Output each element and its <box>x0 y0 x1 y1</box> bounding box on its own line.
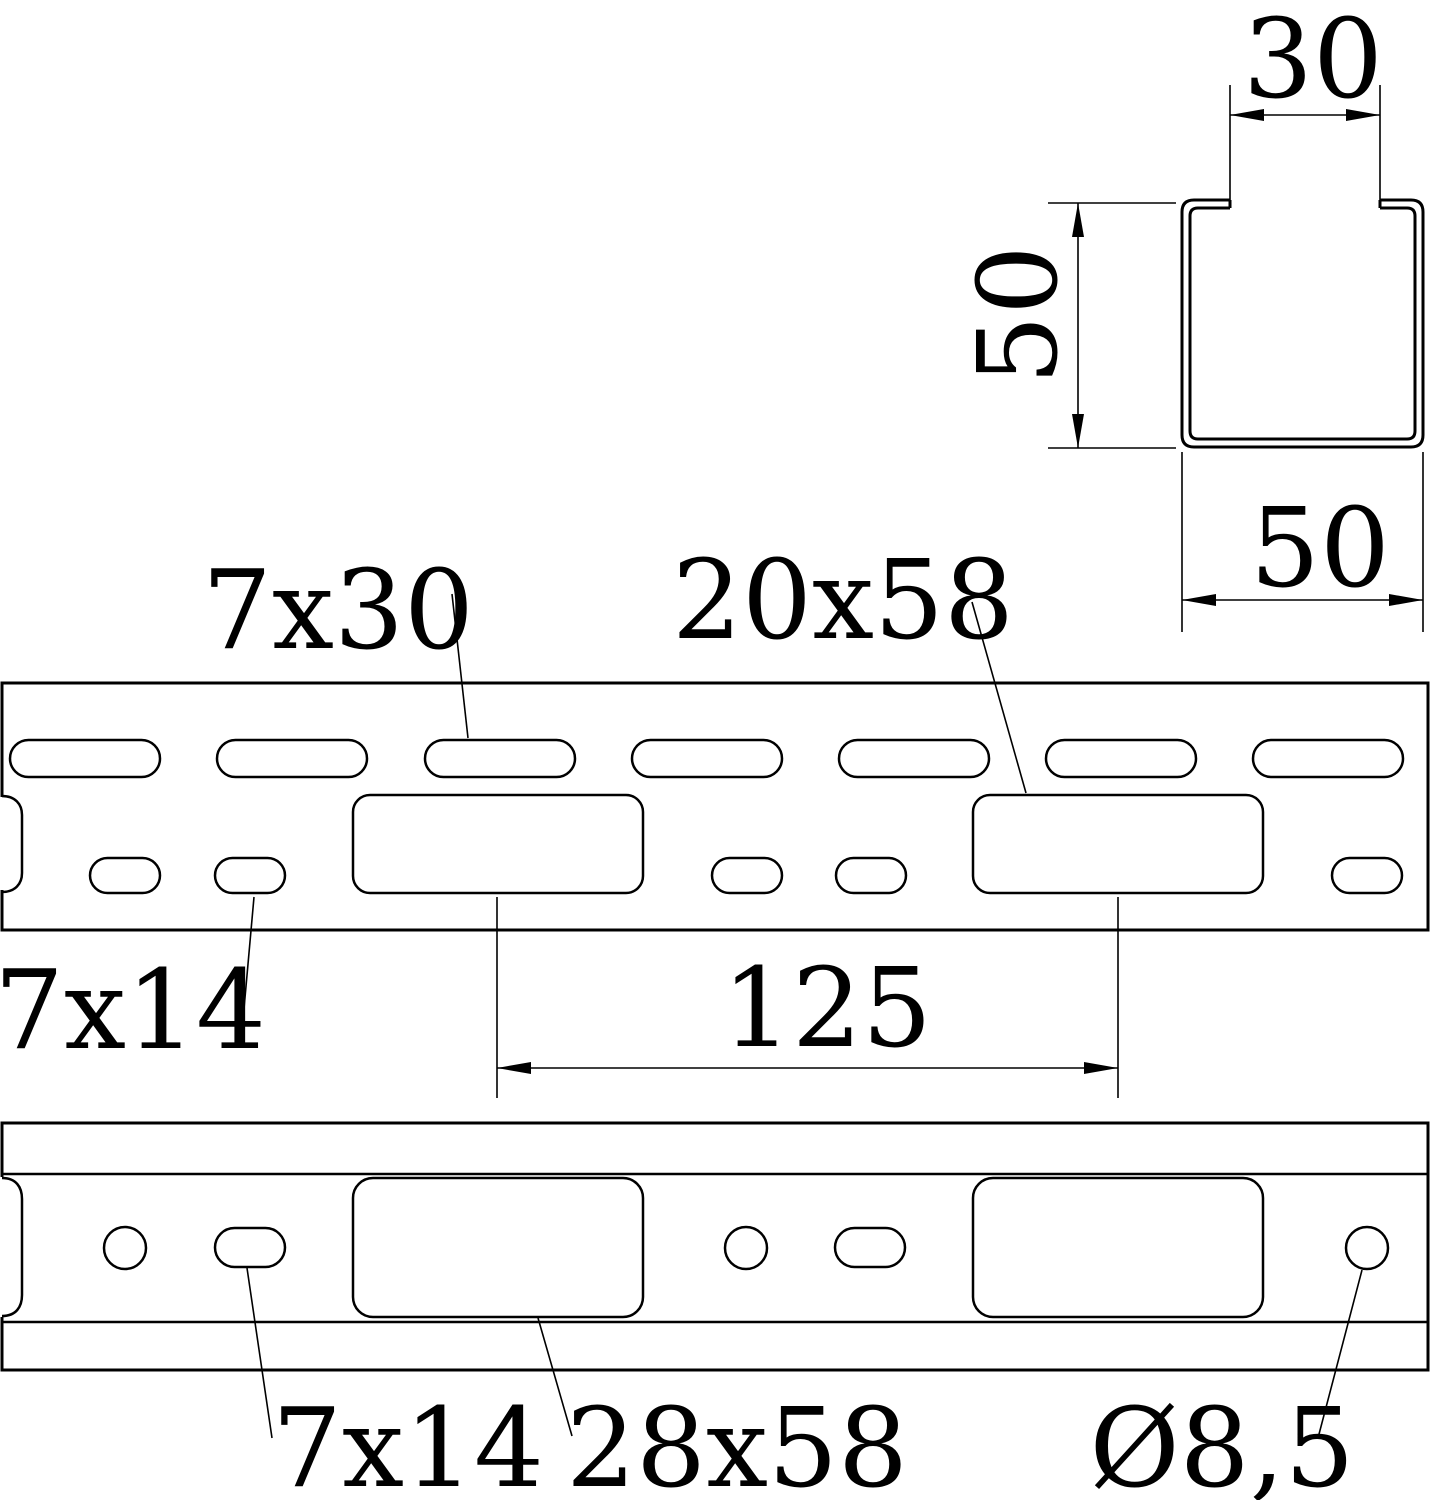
label-7x14-plan: 7x14 <box>0 946 266 1074</box>
dim-125-label: 125 <box>722 944 932 1072</box>
slot-7x30 <box>1046 740 1196 777</box>
dimension-50-width: 50 <box>1182 452 1423 632</box>
slot-7x14 <box>835 1228 905 1267</box>
edge-slot-partial <box>2 1178 22 1316</box>
arrowhead-bottom <box>1072 414 1084 448</box>
label-28x58: 28x58 <box>566 1384 908 1500</box>
slot-7x14 <box>1332 858 1402 893</box>
label-7x14-side: 7x14 <box>272 1384 544 1500</box>
edge-slot-partial <box>2 796 22 892</box>
cross-section-view: 30 50 50 <box>954 0 1423 632</box>
top-slot-row <box>10 740 1403 777</box>
slot-20x58 <box>353 795 643 893</box>
slot-7x14 <box>90 858 160 893</box>
dim-30-label: 30 <box>1243 0 1383 123</box>
slot-7x14 <box>215 1228 285 1267</box>
bottom-slot-row <box>90 795 1402 893</box>
side-view: 7x14 28x58 Ø8,5 <box>2 1123 1428 1500</box>
side-hole-row <box>104 1178 1388 1317</box>
slot-7x30 <box>425 740 575 777</box>
cross-section-inner-contour <box>1190 208 1415 439</box>
leader-7x14-side <box>247 1268 272 1438</box>
slot-7x30 <box>1253 740 1403 777</box>
slot-7x30 <box>839 740 989 777</box>
dimension-125: 125 <box>497 897 1118 1098</box>
plan-view: 7x30 20x58 7x14 125 <box>0 536 1428 1098</box>
slot-7x14 <box>712 858 782 893</box>
slot-7x14 <box>836 858 906 893</box>
slot-28x58 <box>353 1178 643 1317</box>
slot-20x58 <box>973 795 1263 893</box>
hole-8-5 <box>104 1227 146 1269</box>
drawing-page: 30 50 50 <box>0 0 1430 1500</box>
dim-50-width-label: 50 <box>1250 484 1390 612</box>
arrowhead-left <box>1182 594 1216 606</box>
slot-28x58 <box>973 1178 1263 1317</box>
arrowhead-left <box>497 1062 531 1074</box>
hole-8-5 <box>1346 1227 1388 1269</box>
slot-7x30 <box>632 740 782 777</box>
dimension-50-height: 50 <box>954 203 1176 448</box>
dimension-30: 30 <box>1230 0 1383 207</box>
label-7x30: 7x30 <box>202 546 474 674</box>
arrowhead-right <box>1084 1062 1118 1074</box>
label-20x58: 20x58 <box>672 536 1014 664</box>
dim-50-height-label: 50 <box>954 245 1082 385</box>
label-hole-dia: Ø8,5 <box>1089 1384 1354 1500</box>
technical-drawing-canvas: 30 50 50 <box>0 0 1430 1500</box>
arrowhead-right <box>1389 594 1423 606</box>
slot-7x30 <box>217 740 367 777</box>
cross-section-outer-contour <box>1182 200 1423 447</box>
slot-7x30 <box>10 740 160 777</box>
slot-7x14 <box>215 858 285 893</box>
arrowhead-top <box>1072 203 1084 237</box>
hole-8-5 <box>725 1227 767 1269</box>
